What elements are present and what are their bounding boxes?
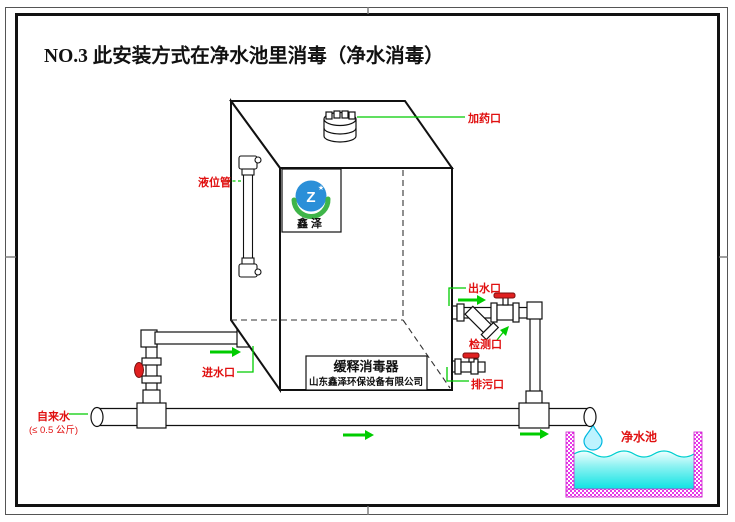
nameplate-product-name: 缓释消毒器 bbox=[333, 359, 399, 374]
level-tube-bottom-knob bbox=[255, 269, 261, 275]
drain-end-pipe bbox=[478, 362, 485, 372]
outlet-port-flange bbox=[457, 304, 464, 321]
pool-wall-left bbox=[566, 432, 574, 497]
nameplate-company-name: 山东鑫泽环保设备有限公司 bbox=[309, 376, 423, 388]
drawing-title: NO.3 此安装方式在净水池里消毒（净水消毒） bbox=[44, 44, 444, 67]
inlet-valve-flange-bottom bbox=[142, 376, 161, 383]
outlet-valve-flange-right bbox=[513, 303, 519, 322]
label-test-port: 检测口 bbox=[469, 337, 502, 351]
tee-left-body bbox=[137, 403, 166, 428]
outlet-valve-body bbox=[497, 305, 513, 320]
outlet-elbow bbox=[527, 302, 542, 319]
level-tube-top-cap bbox=[239, 156, 257, 169]
pool-wall-right bbox=[694, 432, 702, 497]
tee-right-stub bbox=[526, 391, 542, 404]
drain-flange-left bbox=[455, 359, 461, 374]
label-level-tube: 液位管 bbox=[198, 175, 231, 189]
label-drain-port: 排污口 bbox=[471, 377, 504, 391]
tee-right-body bbox=[519, 403, 549, 428]
flow-arrow-main-pipe bbox=[343, 430, 374, 440]
outlet-valve-flange-left bbox=[491, 303, 497, 322]
pipe-open-end-right bbox=[584, 408, 596, 427]
pool-water bbox=[574, 451, 694, 489]
inlet-valve-handle bbox=[135, 363, 144, 378]
water-drop-icon bbox=[584, 425, 602, 450]
logo-z-glyph: Z bbox=[306, 189, 315, 206]
tee-left-stub bbox=[143, 390, 160, 404]
drain-valve-body bbox=[461, 362, 471, 372]
label-clean-water-pool: 净水池 bbox=[621, 429, 657, 444]
pool-wall-bottom bbox=[566, 489, 702, 497]
logo-star-glyph: ★ bbox=[318, 184, 324, 192]
disinfector-tank: Z ★ 鑫泽 缓释消毒器 山东鑫泽环保设备有限公司 bbox=[231, 101, 452, 390]
drain-valve-stem bbox=[469, 358, 474, 362]
label-dosing-port: 加药口 bbox=[467, 111, 501, 125]
label-tap-water-pressure: (≤ 0.5 公斤) bbox=[29, 425, 78, 436]
level-tube-bottom-cap bbox=[239, 264, 257, 277]
flow-arrow-pool-feed bbox=[520, 429, 549, 439]
brand-logo-plate: Z ★ 鑫泽 bbox=[282, 169, 341, 232]
logo-brand-text: 鑫泽 bbox=[296, 216, 325, 230]
drain-valve-handle bbox=[463, 353, 479, 358]
diagram-canvas: NO.3 此安装方式在净水池里消毒（净水消毒） 净水池 bbox=[0, 0, 735, 522]
dosing-cap bbox=[324, 111, 356, 142]
tank-nameplate: 缓释消毒器 山东鑫泽环保设备有限公司 bbox=[306, 356, 427, 390]
pipe-open-end-left bbox=[91, 408, 103, 427]
leader-inlet bbox=[237, 346, 253, 372]
outlet-riser-pipe bbox=[530, 316, 540, 392]
flow-arrow-inlet bbox=[210, 347, 241, 357]
label-outlet-port: 出水口 bbox=[468, 281, 501, 295]
inlet-valve-flange-top bbox=[142, 358, 161, 365]
clean-water-pool: 净水池 bbox=[566, 425, 702, 497]
inlet-horizontal-pipe bbox=[155, 332, 239, 344]
inlet-riser-pipe bbox=[146, 345, 157, 392]
label-tap-water: 自来水 bbox=[37, 409, 71, 423]
level-tube-top-knob bbox=[255, 157, 261, 163]
cad-drawing-page: NO.3 此安装方式在净水池里消毒（净水消毒） 净水池 bbox=[0, 0, 735, 522]
label-inlet-port: 进水口 bbox=[202, 365, 235, 379]
